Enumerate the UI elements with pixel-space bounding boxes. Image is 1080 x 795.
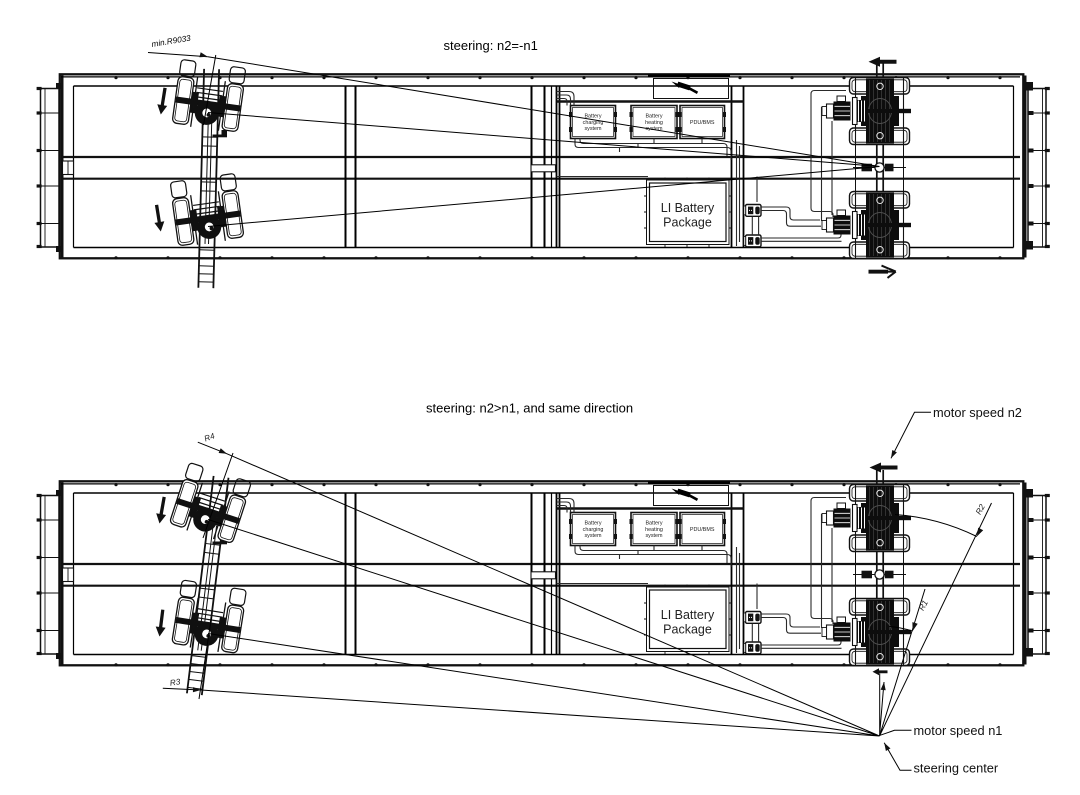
svg-text:motor speed n2: motor speed n2 (933, 405, 1022, 420)
svg-text:R3: R3 (169, 677, 181, 687)
svg-text:motor speed n1: motor speed n1 (914, 723, 1003, 738)
svg-text:steering center: steering center (914, 761, 999, 776)
svg-text:steering: n2>n1, and same dir: steering: n2>n1, and same direction (426, 401, 633, 416)
svg-text:steering: n2=-n1: steering: n2=-n1 (444, 38, 538, 53)
